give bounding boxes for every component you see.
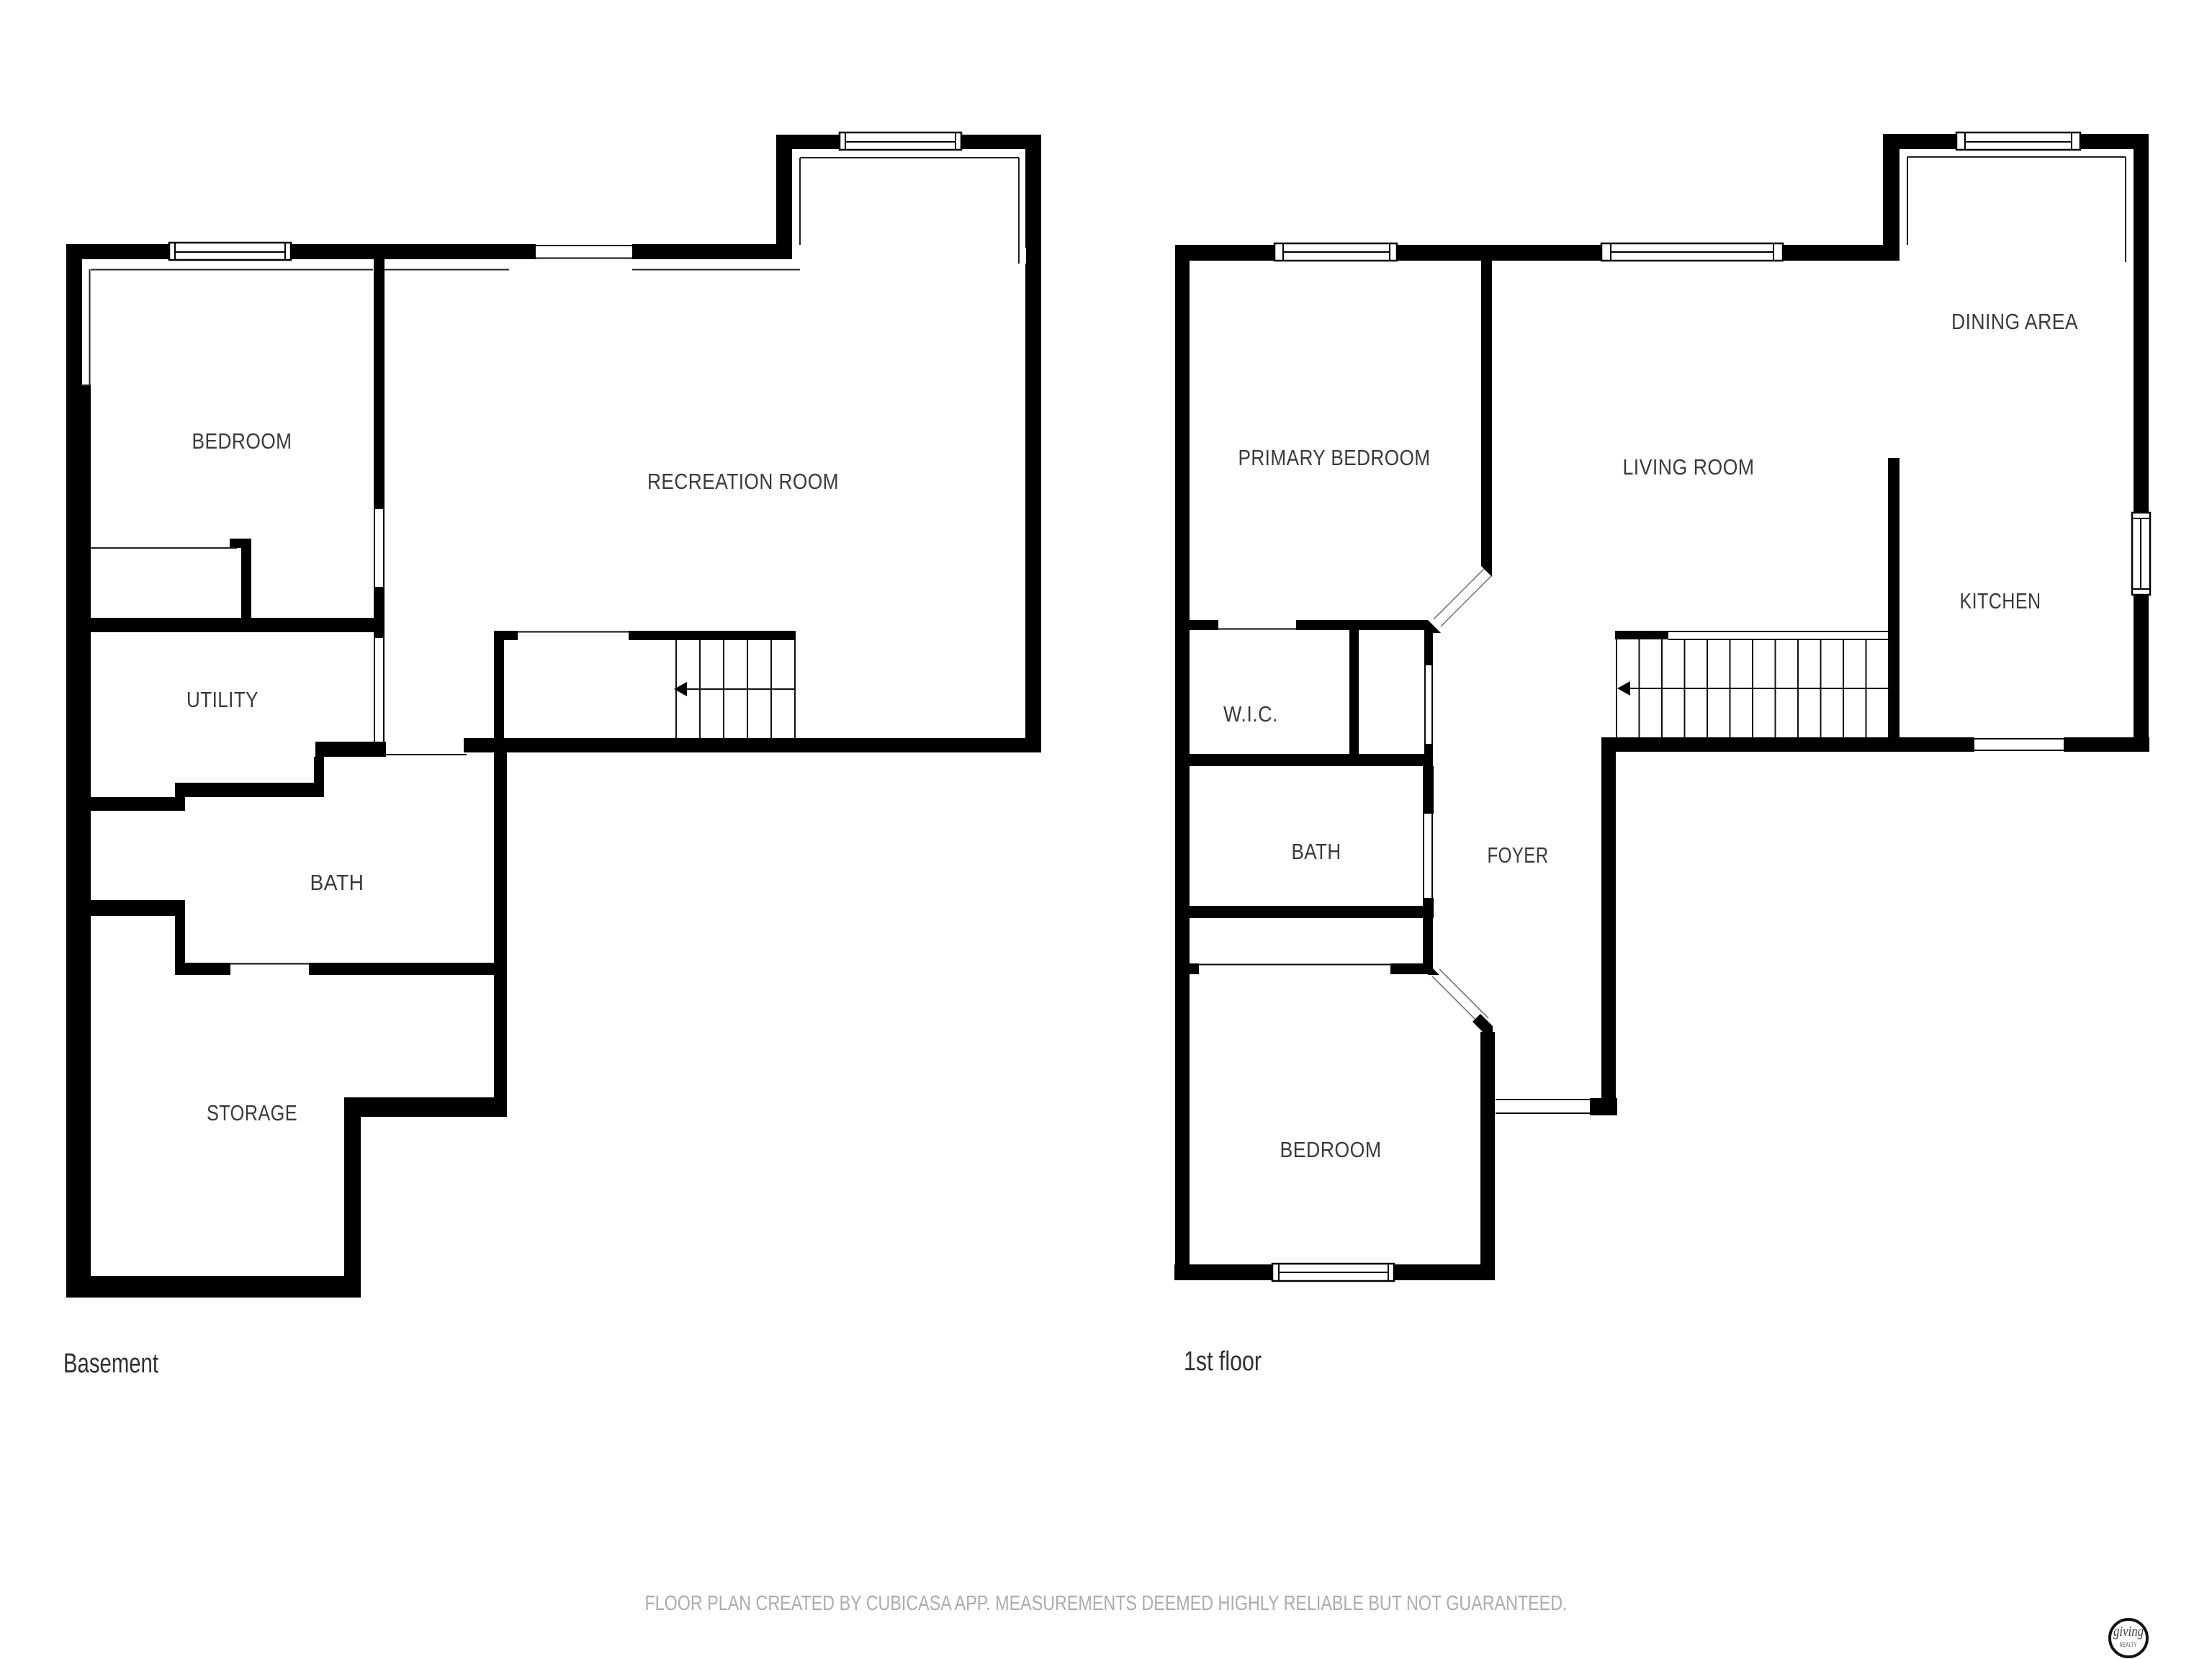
svg-text:1st floor: 1st floor <box>1184 1346 1262 1377</box>
svg-text:giving: giving <box>2113 1624 2144 1640</box>
svg-text:BEDROOM: BEDROOM <box>192 428 292 454</box>
svg-text:PRIMARY BEDROOM: PRIMARY BEDROOM <box>1238 445 1431 470</box>
svg-text:BATH: BATH <box>1292 839 1341 864</box>
svg-text:STORAGE: STORAGE <box>207 1100 297 1125</box>
svg-text:DINING AREA: DINING AREA <box>1951 309 2078 334</box>
svg-text:UTILITY: UTILITY <box>186 687 258 712</box>
svg-text:LIVING ROOM: LIVING ROOM <box>1623 454 1755 480</box>
svg-text:Basement: Basement <box>63 1349 158 1379</box>
svg-text:KITCHEN: KITCHEN <box>1960 588 2041 613</box>
svg-text:BATH: BATH <box>310 870 364 895</box>
svg-text:REALTY: REALTY <box>2120 1642 2137 1648</box>
svg-text:BEDROOM: BEDROOM <box>1280 1137 1382 1162</box>
svg-text:FOYER: FOYER <box>1488 842 1549 868</box>
svg-text:FLOOR PLAN CREATED BY CUBICASA: FLOOR PLAN CREATED BY CUBICASA APP. MEAS… <box>645 1592 1568 1615</box>
svg-text:RECREATION ROOM: RECREATION ROOM <box>647 469 839 494</box>
svg-text:W.I.C.: W.I.C. <box>1223 701 1278 727</box>
